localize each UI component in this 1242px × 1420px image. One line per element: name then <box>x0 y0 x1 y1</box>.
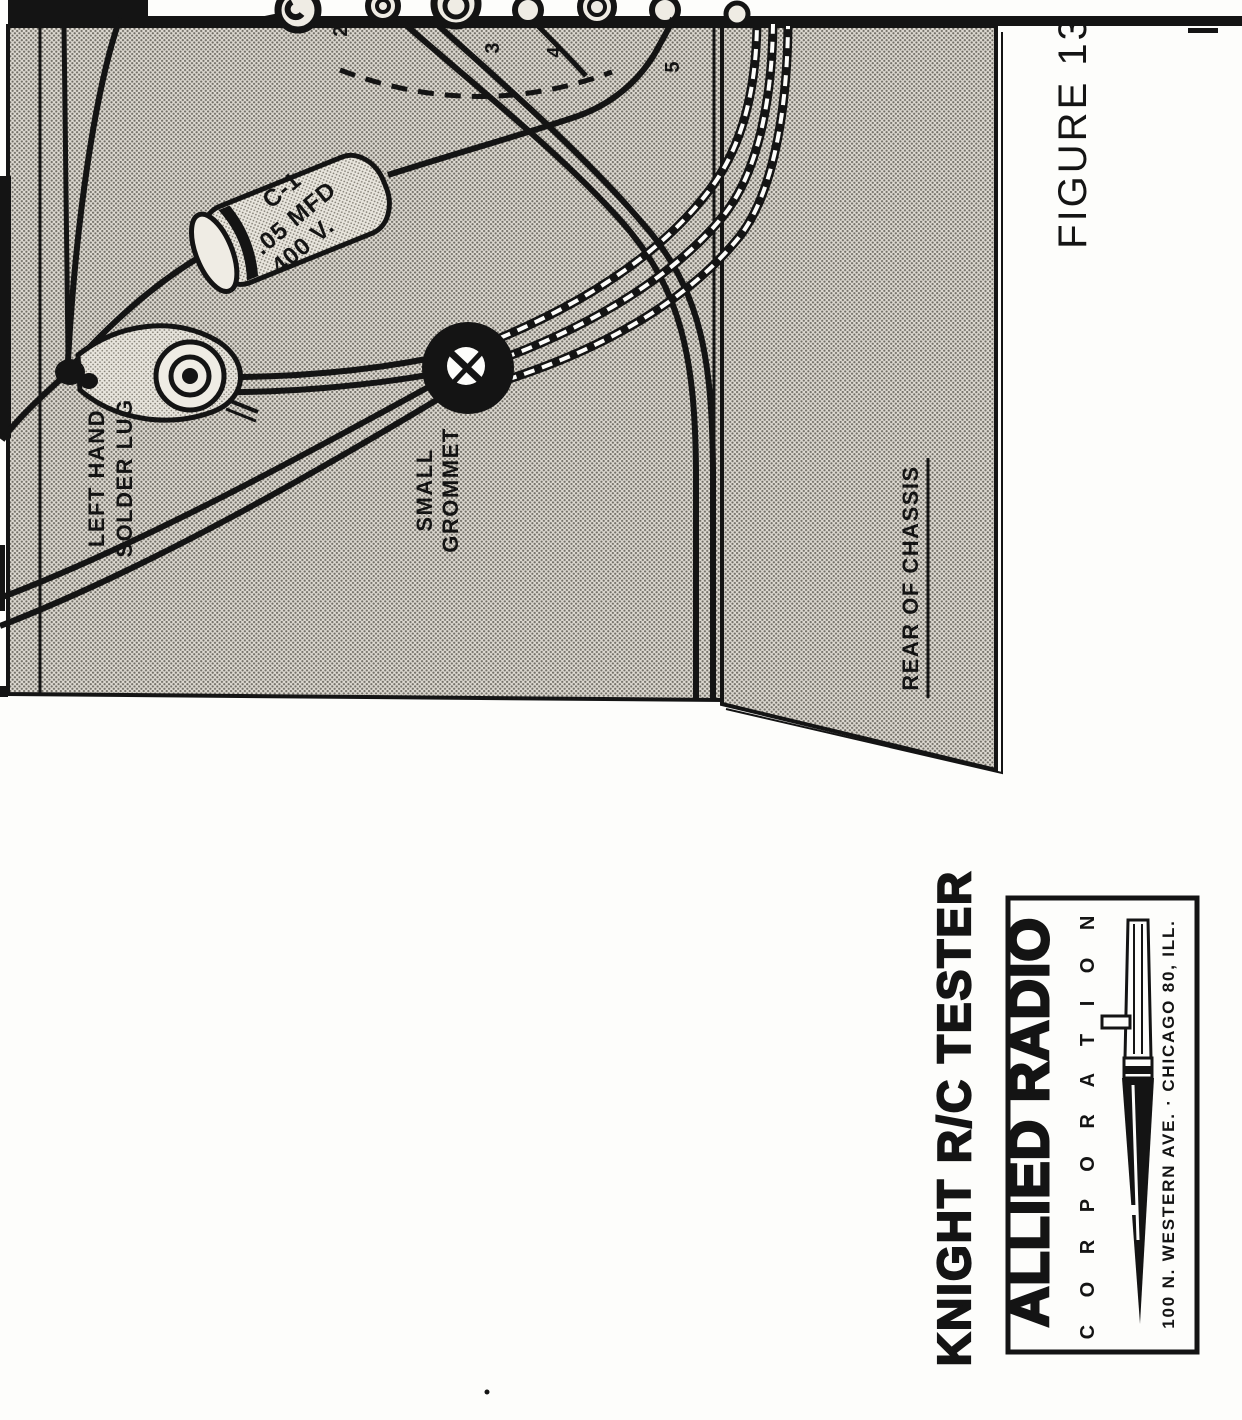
solder-joint-blob-2 <box>80 373 98 389</box>
pen-clip <box>1102 1016 1130 1028</box>
company-address: 100 N. WESTERN AVE. · CHICAGO 80, ILL. <box>1159 919 1178 1328</box>
pen-barrel-notch <box>1128 1205 1136 1215</box>
solder-lug-label-line1: LEFT HAND <box>84 409 109 547</box>
left-margin-dot-artifact <box>0 686 8 697</box>
top-right-dash-artifact <box>1188 28 1218 33</box>
grommet <box>422 322 514 414</box>
manual-page: 2 3 4 5 <box>0 0 1242 1420</box>
terminal-number-5: 5 <box>662 61 684 72</box>
lug-eyelet-hole <box>182 368 198 384</box>
company-name: ALLIED RADIO <box>997 917 1060 1327</box>
pen-collar-band <box>1124 1066 1152 1074</box>
figure-caption: FIGURE 13 <box>1051 15 1095 249</box>
left-margin-bar-artifact <box>0 176 11 438</box>
company-subtitle: C O R P O R A T I O N <box>1077 905 1099 1340</box>
socket-terminal-7 <box>726 3 748 25</box>
top-left-black-bar <box>8 0 148 17</box>
socket-terminal-3 <box>434 0 478 26</box>
grommet-label-line2: GROMMET <box>438 427 463 552</box>
grommet-label-line1: SMALL <box>412 448 437 531</box>
terminal-number-2: 2 <box>330 25 352 36</box>
left-margin-mark-artifact <box>0 545 5 611</box>
pen-cap <box>1125 920 1151 1058</box>
socket-terminal-4 <box>515 0 541 23</box>
wiring-diagram-figure: 2 3 4 5 <box>0 0 1242 1420</box>
solder-lug-label-line2: SOLDER LUG <box>112 398 137 557</box>
title-block: KNIGHT R/C TESTER ALLIED RADIO C O R P O… <box>928 870 1197 1367</box>
pen-illustration <box>1102 920 1154 1324</box>
socket-terminal-5 <box>580 0 614 24</box>
rear-of-chassis-label: REAR OF CHASSIS <box>898 465 923 690</box>
speck-artifact <box>485 1390 490 1395</box>
product-title: KNIGHT R/C TESTER <box>928 870 980 1367</box>
terminal-number-3: 3 <box>482 42 504 53</box>
